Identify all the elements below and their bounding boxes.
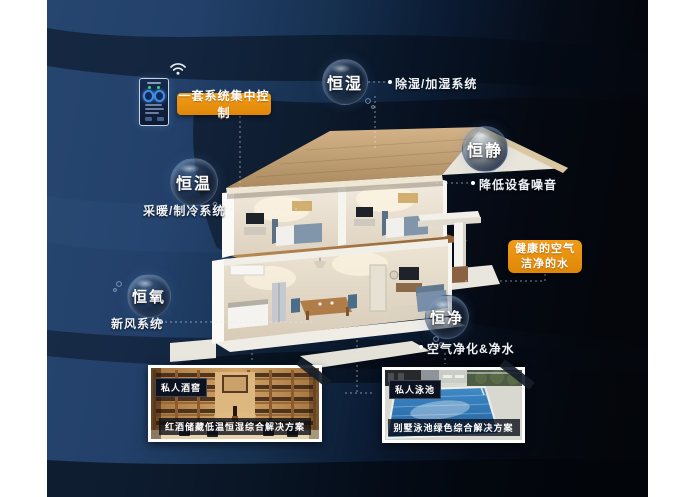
pool-card: 私人泳池 别墅泳池绿色综合解决方案 — [382, 367, 525, 443]
bubble-label: 恒静 — [467, 137, 503, 161]
phone-status-dots — [145, 86, 163, 89]
infographic-canvas: 一套系统集中控制 健康的空气 洁净的水 恒湿 恒静 恒温 恒氧 恒净 除湿/加湿… — [47, 0, 648, 497]
phone-buttons — [142, 117, 166, 121]
central-control-tag: 一套系统集中控制 — [177, 93, 271, 115]
note-humidity-system: 除湿/加湿系统 — [395, 75, 477, 92]
phone-titlebar — [147, 82, 161, 84]
wine-cellar-card: 私人酒窖 红酒储藏低温恒湿综合解决方案 — [148, 365, 322, 442]
note-heating-cooling: 采暖/制冷系统 — [143, 202, 225, 219]
bubble-constant-quiet: 恒静 — [462, 126, 508, 172]
bubble-label: 恒净 — [430, 307, 464, 328]
control-knob-icon — [154, 90, 165, 102]
house-upper-floor — [222, 180, 447, 258]
highlight-line2: 洁净的水 — [521, 257, 569, 272]
bubble-constant-oxygen: 恒氧 — [127, 274, 171, 318]
central-control-label: 一套系统集中控制 — [177, 87, 271, 121]
bubble-label: 恒温 — [176, 170, 212, 194]
bubble-label: 恒湿 — [327, 70, 363, 94]
house-ground-floor — [212, 239, 452, 344]
control-knob-icon — [143, 90, 154, 102]
note-noise-reduction: 降低设备噪音 — [479, 176, 557, 193]
smart-control-phone — [139, 78, 169, 126]
healthy-air-water-tag: 健康的空气 洁净的水 — [508, 240, 582, 273]
house-floor-slab — [224, 233, 468, 266]
bubble-constant-purity: 恒净 — [425, 295, 469, 339]
house-porch — [418, 211, 481, 283]
bubble-constant-humidity: 恒湿 — [322, 59, 368, 105]
note-fresh-air: 新风系统 — [111, 315, 163, 332]
highlight-line1: 健康的空气 — [515, 242, 575, 257]
phone-control-knobs — [143, 90, 165, 102]
wine-cellar-badge: 私人酒窖 — [155, 378, 207, 397]
wifi-icon — [168, 60, 188, 76]
note-air-water-purification: 空气净化&净水 — [427, 340, 515, 357]
pool-badge: 私人泳池 — [389, 380, 441, 399]
bubble-label: 恒氧 — [132, 286, 166, 307]
bubble-constant-temperature: 恒温 — [170, 158, 218, 206]
pool-caption: 别墅泳池绿色综合解决方案 — [387, 419, 519, 436]
wine-cellar-caption: 红酒储藏低温恒湿综合解决方案 — [159, 418, 311, 435]
